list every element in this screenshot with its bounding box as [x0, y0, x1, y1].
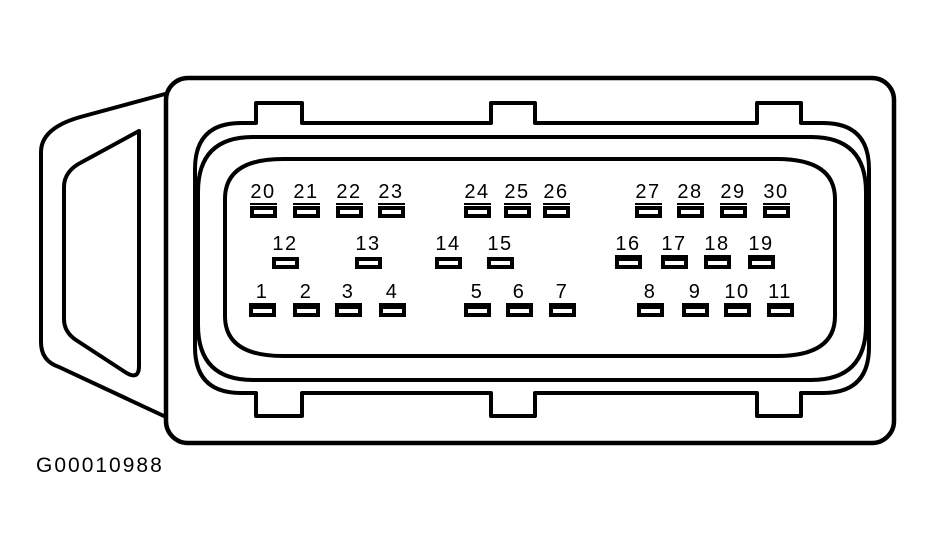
pin-number: 24: [457, 182, 497, 202]
pin-26: 26: [536, 182, 576, 202]
pin-number: 2: [286, 282, 326, 302]
pin-terminal-pad: [378, 206, 405, 218]
pin-number: 13: [348, 234, 388, 254]
pin-number: 1: [242, 282, 282, 302]
pin-29: 29: [713, 182, 753, 202]
pin-number: 25: [497, 182, 537, 202]
pin-16: 16: [608, 234, 648, 254]
pin-terminal-pad: [704, 257, 731, 269]
pin-number: 21: [286, 182, 326, 202]
pin-terminal-pad: [677, 206, 704, 218]
pin-20: 20: [243, 182, 283, 202]
pin-number: 8: [630, 282, 670, 302]
pin-15: 15: [480, 234, 520, 254]
pin-number: 3: [328, 282, 368, 302]
pin-number: 7: [542, 282, 582, 302]
pin-terminal-pad: [355, 257, 382, 269]
pin-number: 14: [428, 234, 468, 254]
pin-terminal-pad: [293, 305, 320, 317]
pin-terminal-pad: [250, 206, 277, 218]
pin-11: 11: [760, 282, 800, 302]
pin-number: 10: [717, 282, 757, 302]
pin-number: 4: [372, 282, 412, 302]
pin-23: 23: [371, 182, 411, 202]
pin-4: 4: [372, 282, 412, 302]
pin-number-underline: [464, 203, 491, 206]
pin-terminal-pad: [379, 305, 406, 317]
pin-number: 23: [371, 182, 411, 202]
pin-8: 8: [630, 282, 670, 302]
pin-terminal-pad: [724, 305, 751, 317]
pin-number: 5: [457, 282, 497, 302]
pin-19: 19: [741, 234, 781, 254]
pin-terminal-pad: [615, 257, 642, 269]
pin-number-underline: [293, 203, 320, 206]
pin-terminal-pad: [661, 257, 688, 269]
pin-terminal-pad: [682, 305, 709, 317]
pin-number-underline: [378, 203, 405, 206]
pin-number: 20: [243, 182, 283, 202]
pin-terminal-pad: [637, 305, 664, 317]
pin-number-underline: [336, 203, 363, 206]
pin-terminal-pad: [506, 305, 533, 317]
pin-number-underline: [763, 203, 790, 206]
pin-terminal-pad: [720, 206, 747, 218]
pin-18: 18: [697, 234, 737, 254]
pin-13: 13: [348, 234, 388, 254]
pin-number: 18: [697, 234, 737, 254]
pin-terminal-pad: [464, 206, 491, 218]
pin-9: 9: [675, 282, 715, 302]
pin-terminal-pad: [549, 305, 576, 317]
pin-22: 22: [329, 182, 369, 202]
pin-30: 30: [756, 182, 796, 202]
pin-number-underline: [543, 203, 570, 206]
pin-terminal-pad: [249, 305, 276, 317]
pin-terminal-pad: [464, 305, 491, 317]
pin-terminal-pad: [336, 206, 363, 218]
pin-number-underline: [635, 203, 662, 206]
pin-2: 2: [286, 282, 326, 302]
pin-terminal-pad: [748, 257, 775, 269]
pin-terminal-pad: [767, 305, 794, 317]
pin-number-underline: [720, 203, 747, 206]
pin-number: 30: [756, 182, 796, 202]
pin-10: 10: [717, 282, 757, 302]
pin-number: 12: [265, 234, 305, 254]
pin-terminal-pad: [763, 206, 790, 218]
pin-21: 21: [286, 182, 326, 202]
pin-7: 7: [542, 282, 582, 302]
pin-25: 25: [497, 182, 537, 202]
pin-number-underline: [250, 203, 277, 206]
pin-number: 26: [536, 182, 576, 202]
pin-terminal-pad: [635, 206, 662, 218]
pin-17: 17: [654, 234, 694, 254]
pin-number: 15: [480, 234, 520, 254]
pin-number: 27: [628, 182, 668, 202]
pin-number: 22: [329, 182, 369, 202]
connector-diagram-figure: 2021222324252627282930121314151617181912…: [0, 0, 934, 553]
pin-number: 9: [675, 282, 715, 302]
pin-number: 28: [670, 182, 710, 202]
pin-3: 3: [328, 282, 368, 302]
pin-number: 17: [654, 234, 694, 254]
pin-number: 11: [760, 282, 800, 302]
pin-number: 6: [499, 282, 539, 302]
pin-5: 5: [457, 282, 497, 302]
pin-12: 12: [265, 234, 305, 254]
pin-number: 29: [713, 182, 753, 202]
pin-6: 6: [499, 282, 539, 302]
pin-number-underline: [677, 203, 704, 206]
pin-terminal-pad: [504, 206, 531, 218]
pin-24: 24: [457, 182, 497, 202]
pin-terminal-pad: [435, 257, 462, 269]
pin-terminal-pad: [272, 257, 299, 269]
pin-28: 28: [670, 182, 710, 202]
pin-number-underline: [504, 203, 531, 206]
pin-terminal-pad: [487, 257, 514, 269]
pin-14: 14: [428, 234, 468, 254]
pin-terminal-pad: [293, 206, 320, 218]
pin-terminal-pad: [543, 206, 570, 218]
pin-terminal-pad: [335, 305, 362, 317]
pin-27: 27: [628, 182, 668, 202]
pin-number: 16: [608, 234, 648, 254]
pin-number: 19: [741, 234, 781, 254]
pin-1: 1: [242, 282, 282, 302]
figure-caption: G00010988: [36, 454, 164, 478]
